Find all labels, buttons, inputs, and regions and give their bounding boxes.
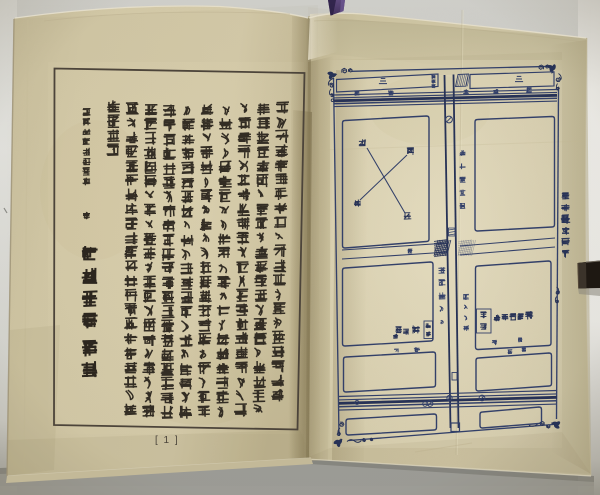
svg-text:[ 1 ]: [ 1 ] (155, 435, 179, 446)
